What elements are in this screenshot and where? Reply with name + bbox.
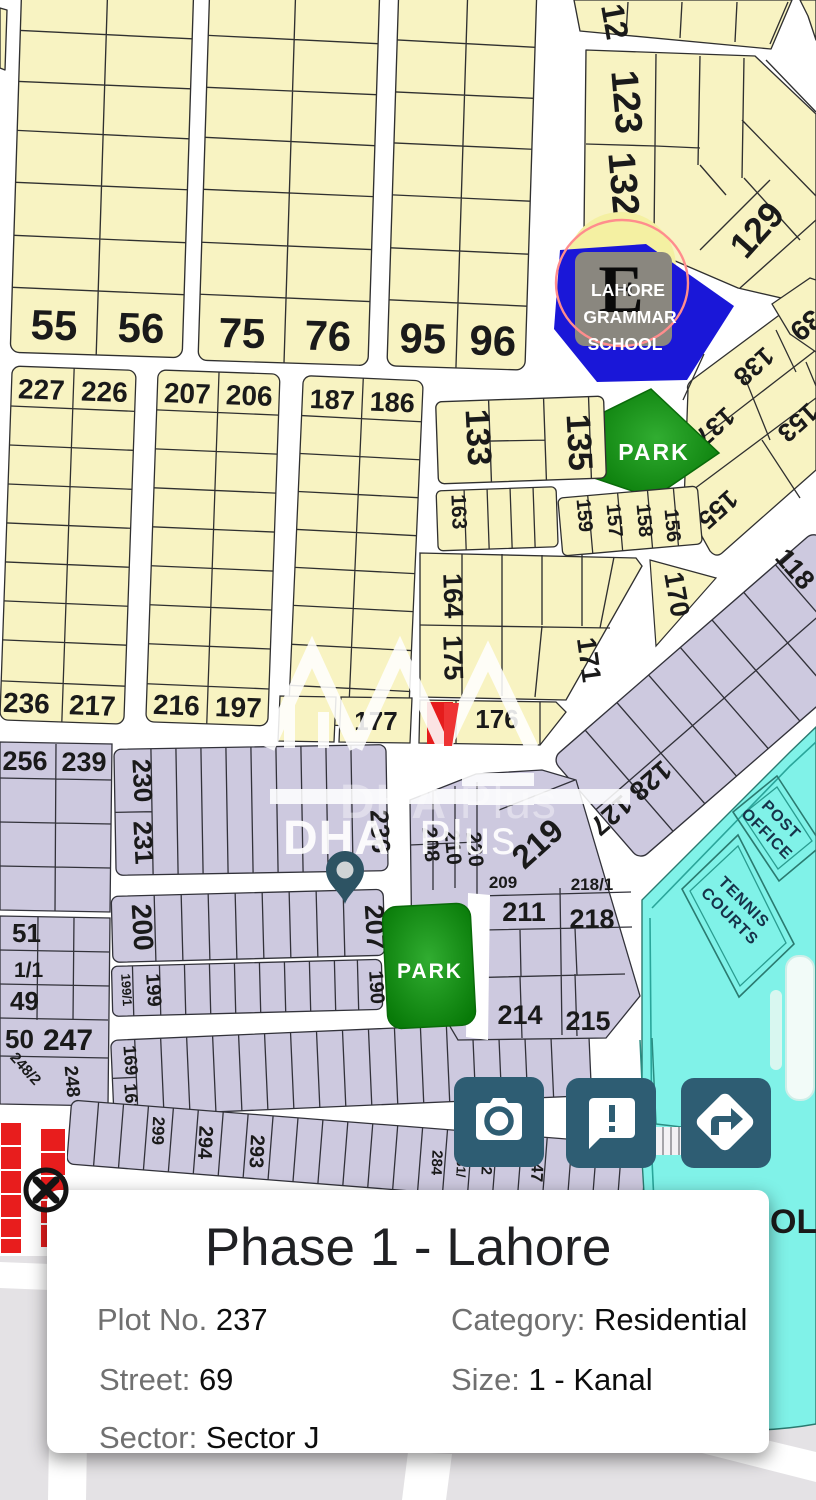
svg-text:239: 239	[61, 747, 106, 777]
svg-text:169: 169	[119, 1045, 141, 1077]
svg-text:51: 51	[12, 918, 41, 948]
svg-text:216: 216	[152, 689, 200, 722]
svg-text:230: 230	[126, 758, 158, 803]
svg-text:158: 158	[632, 503, 657, 538]
svg-text:209: 209	[489, 873, 517, 892]
svg-text:215: 215	[565, 1006, 610, 1036]
svg-text:132: 132	[599, 151, 646, 218]
svg-text:248: 248	[60, 1065, 84, 1098]
svg-text:187: 187	[309, 384, 355, 416]
svg-text:156: 156	[660, 508, 685, 543]
svg-text:OL: OL	[770, 1203, 816, 1241]
svg-text:197: 197	[214, 691, 262, 724]
svg-text:218: 218	[569, 904, 614, 934]
svg-text:56: 56	[117, 304, 165, 352]
svg-text:GRAMMAR: GRAMMAR	[583, 307, 677, 327]
svg-text:76: 76	[304, 312, 352, 360]
svg-text:206: 206	[225, 379, 273, 412]
svg-text:236: 236	[3, 687, 51, 720]
svg-text:247: 247	[43, 1024, 93, 1057]
svg-text:164: 164	[437, 573, 469, 619]
svg-text:1/1: 1/1	[14, 959, 44, 982]
svg-text:163: 163	[446, 494, 470, 530]
svg-text:199/1: 199/1	[118, 973, 135, 1006]
svg-text:159: 159	[572, 498, 597, 533]
svg-text:218/1: 218/1	[571, 875, 614, 894]
svg-text:190: 190	[364, 970, 388, 1005]
svg-text:211: 211	[502, 897, 546, 927]
svg-text:256: 256	[2, 746, 47, 776]
svg-text:171: 171	[571, 635, 607, 684]
svg-text:207: 207	[163, 377, 211, 410]
svg-text:226: 226	[80, 375, 128, 408]
svg-text:135: 135	[559, 413, 600, 472]
svg-text:75: 75	[218, 309, 266, 357]
svg-text:12: 12	[594, 1, 636, 42]
svg-text:214: 214	[497, 1000, 542, 1030]
svg-text:299: 299	[148, 1116, 168, 1145]
svg-text:PARK: PARK	[618, 439, 689, 465]
svg-text:175: 175	[437, 635, 469, 681]
svg-text:227: 227	[18, 373, 66, 406]
svg-text:55: 55	[30, 301, 78, 349]
svg-text:PARK: PARK	[397, 960, 463, 983]
svg-text:231: 231	[127, 820, 159, 865]
svg-text:157: 157	[602, 503, 627, 538]
svg-text:95: 95	[399, 314, 447, 362]
svg-text:200: 200	[126, 903, 160, 952]
svg-text:SCHOOL: SCHOOL	[588, 334, 663, 354]
svg-text:Plus: Plus	[419, 812, 516, 865]
svg-text:123: 123	[602, 69, 649, 136]
svg-text:96: 96	[469, 316, 517, 364]
svg-text:284: 284	[427, 1150, 445, 1176]
svg-text:49: 49	[10, 986, 39, 1016]
svg-text:199: 199	[141, 973, 165, 1008]
svg-text:217: 217	[69, 689, 117, 722]
svg-text:293: 293	[245, 1134, 268, 1168]
svg-text:133: 133	[458, 408, 499, 467]
svg-text:294: 294	[193, 1125, 216, 1160]
svg-text:186: 186	[369, 387, 415, 419]
svg-text:LAHORE: LAHORE	[591, 280, 665, 300]
